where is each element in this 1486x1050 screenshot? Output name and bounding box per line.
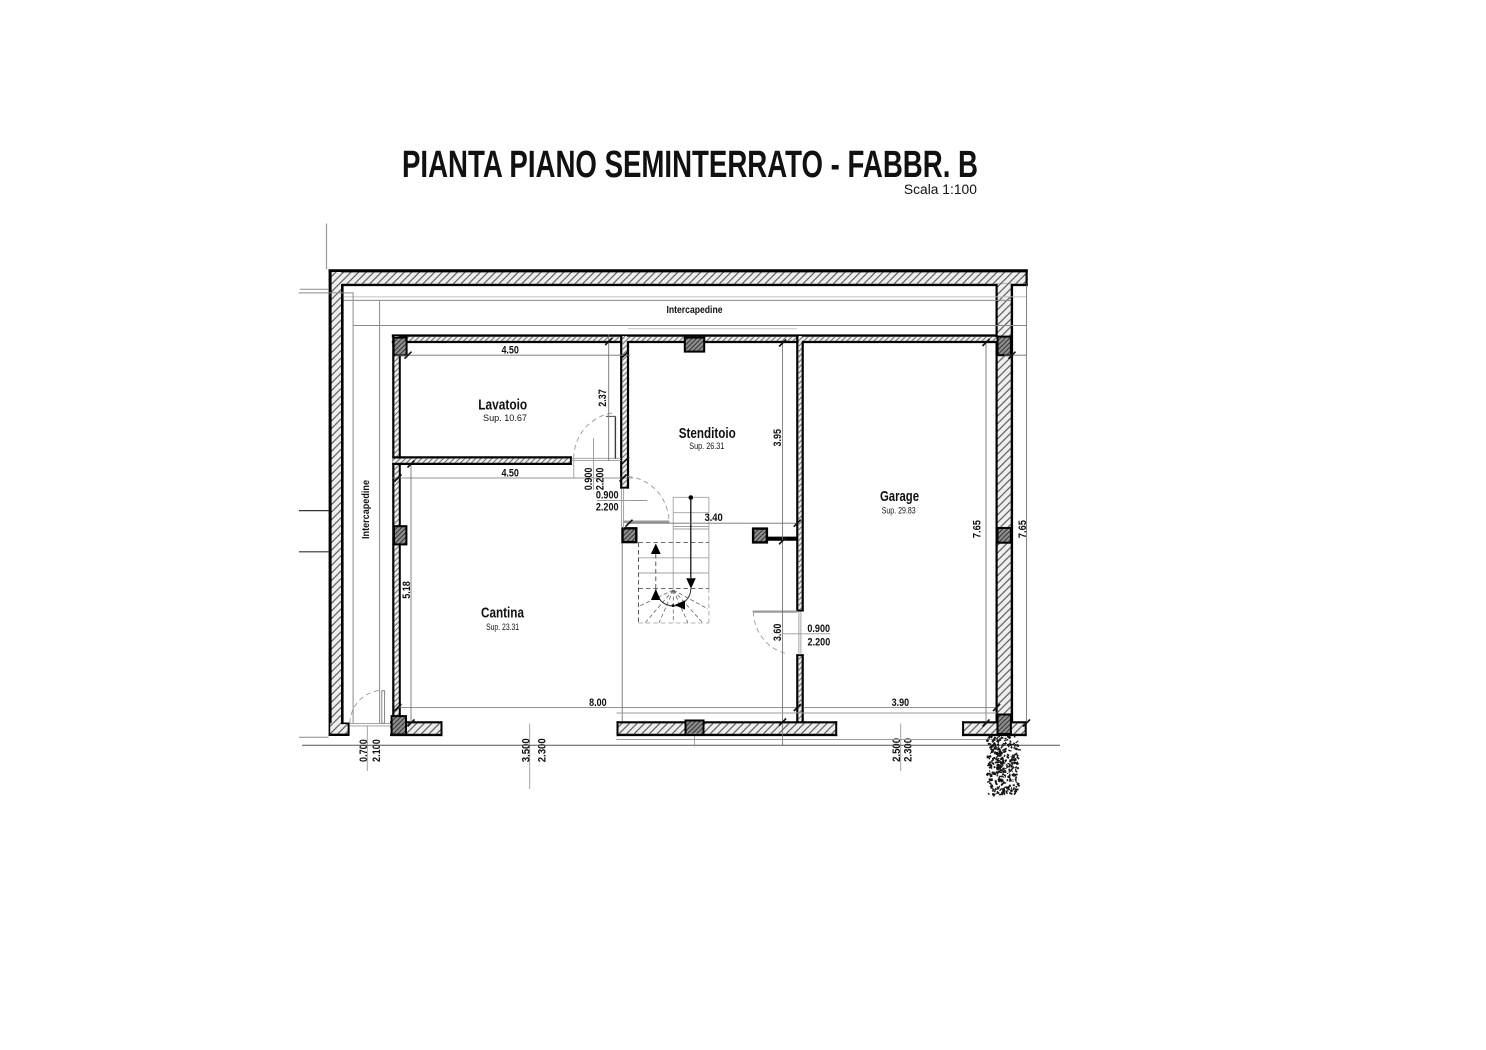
svg-text:2.200: 2.200 bbox=[594, 468, 606, 491]
svg-text:0.900: 0.900 bbox=[596, 489, 619, 501]
svg-text:4.50: 4.50 bbox=[501, 344, 519, 356]
svg-text:7.65: 7.65 bbox=[972, 520, 984, 538]
svg-text:Sup. 10.67: Sup. 10.67 bbox=[483, 413, 527, 423]
svg-text:Intercapedine: Intercapedine bbox=[361, 480, 372, 539]
svg-text:0.900: 0.900 bbox=[583, 468, 595, 491]
svg-text:Lavatoio: Lavatoio bbox=[478, 397, 527, 414]
svg-text:Cantina: Cantina bbox=[481, 605, 525, 622]
svg-text:Scala 1:100: Scala 1:100 bbox=[904, 182, 977, 197]
svg-text:3.95: 3.95 bbox=[772, 429, 784, 447]
svg-text:4.50: 4.50 bbox=[501, 467, 519, 479]
svg-text:5.18: 5.18 bbox=[401, 581, 413, 599]
svg-text:2.200: 2.200 bbox=[596, 502, 619, 514]
svg-text:Sup. 29.83: Sup. 29.83 bbox=[882, 505, 916, 515]
svg-text:PIANTA PIANO SEMINTERRATO - FA: PIANTA PIANO SEMINTERRATO - FABBR. B bbox=[402, 144, 978, 186]
svg-text:Garage: Garage bbox=[880, 488, 919, 505]
svg-text:3.90: 3.90 bbox=[892, 697, 910, 709]
svg-text:2.300: 2.300 bbox=[902, 738, 914, 762]
svg-text:Stenditoio: Stenditoio bbox=[679, 425, 736, 442]
svg-text:7.65: 7.65 bbox=[1017, 520, 1029, 538]
svg-text:3.500: 3.500 bbox=[521, 738, 533, 762]
svg-text:2.200: 2.200 bbox=[808, 636, 831, 648]
svg-text:Sup. 23.31: Sup. 23.31 bbox=[486, 622, 519, 632]
svg-text:Sup. 26.31: Sup. 26.31 bbox=[689, 441, 724, 451]
svg-text:Intercapedine: Intercapedine bbox=[667, 305, 723, 316]
svg-text:2.500: 2.500 bbox=[891, 738, 903, 762]
svg-text:0.700: 0.700 bbox=[358, 739, 370, 762]
svg-text:3.60: 3.60 bbox=[772, 624, 784, 642]
svg-text:0.900: 0.900 bbox=[807, 623, 830, 635]
svg-text:2.300: 2.300 bbox=[536, 738, 548, 762]
svg-text:3.40: 3.40 bbox=[704, 512, 722, 524]
svg-text:2.37: 2.37 bbox=[597, 389, 609, 407]
svg-text:2.100: 2.100 bbox=[371, 739, 383, 762]
svg-text:8.00: 8.00 bbox=[589, 697, 607, 709]
